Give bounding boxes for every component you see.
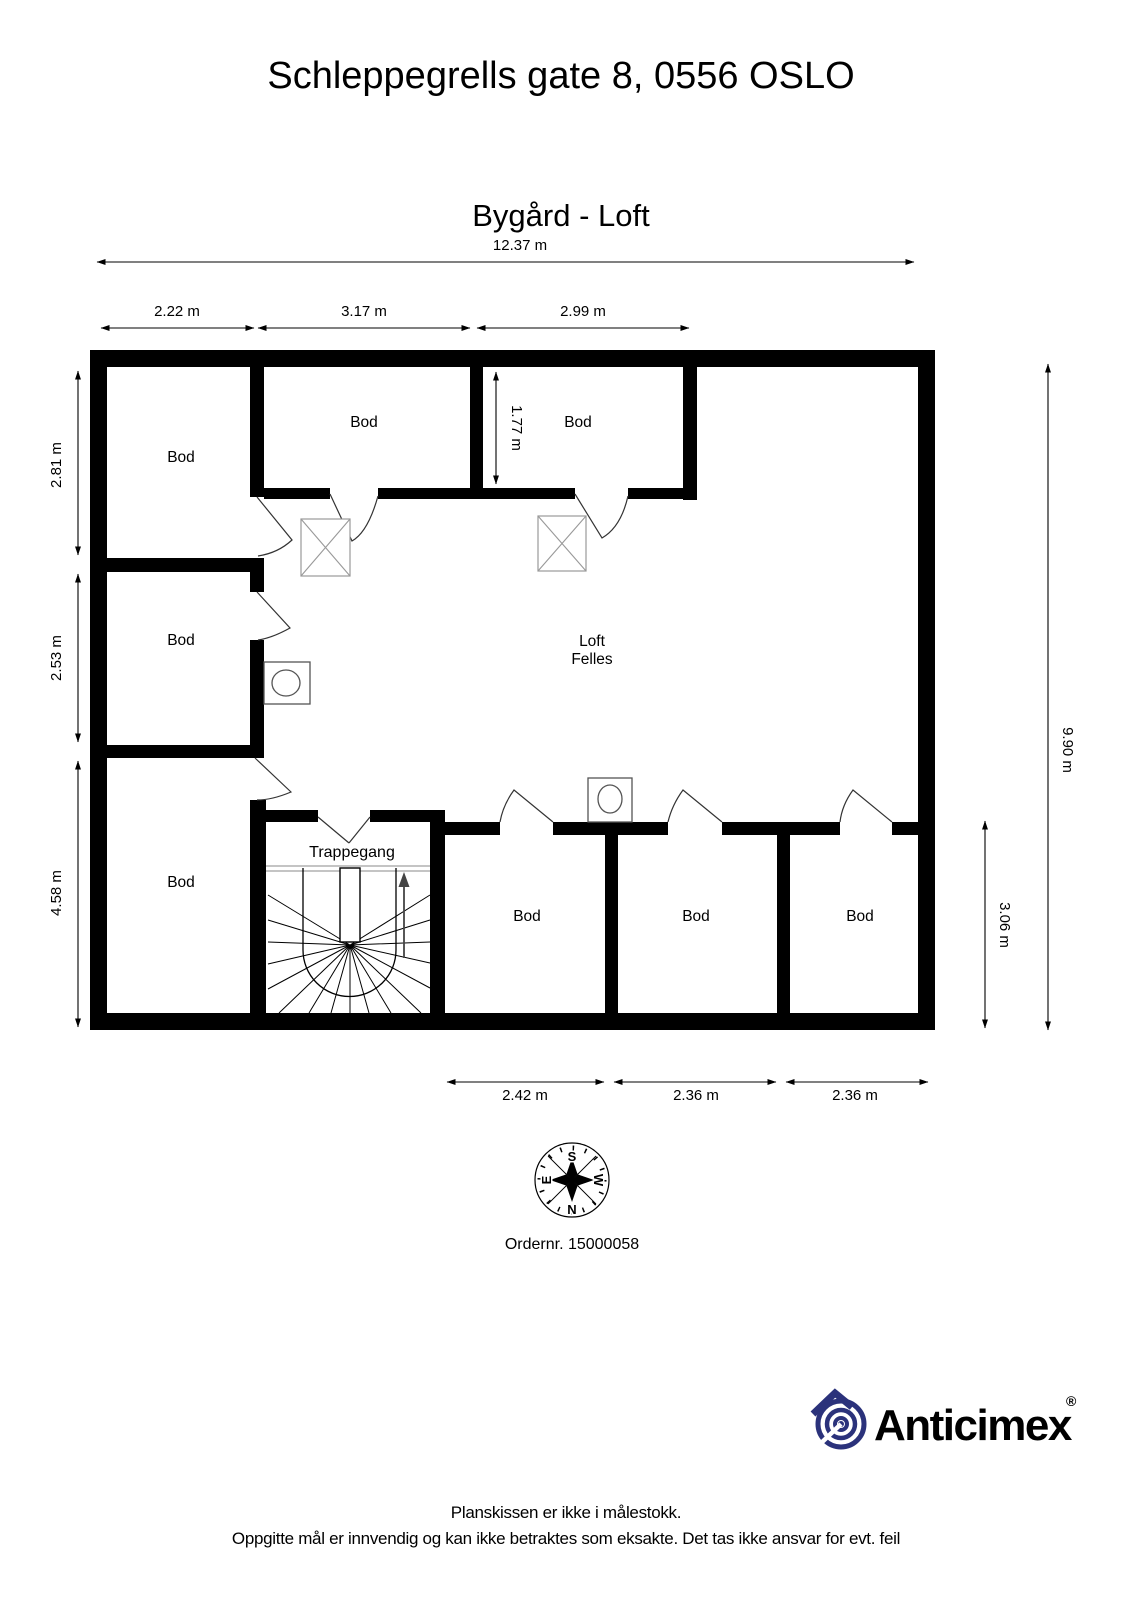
room-label-bod-top-right: Bod <box>564 414 592 431</box>
dimension-top-1-label: 2.22 m <box>154 303 200 320</box>
wall-stairwell-top-a <box>252 810 318 822</box>
dimension-total-width: 12.37 m <box>97 237 914 262</box>
wall-topleft-bod-right <box>250 350 264 497</box>
brand-name: Anticimex <box>874 1401 1073 1450</box>
dimension-inner-room-depth: 1.77 m <box>496 372 525 484</box>
room-label-bod-bottom-2: Bod <box>682 908 710 925</box>
brand-logo-icon <box>813 1393 864 1447</box>
order-number: Ordernr. 15000058 <box>505 1236 639 1253</box>
stair-direction-arrow <box>399 872 410 958</box>
plan-subtitle: Bygård - Loft <box>472 198 650 233</box>
registered-trademark-icon: ® <box>1066 1393 1077 1409</box>
dimension-top-3-label: 2.99 m <box>560 303 606 320</box>
page-title: Schleppegrells gate 8, 0556 OSLO <box>267 55 854 97</box>
outer-wall-top <box>90 350 935 367</box>
wall-bottom-rooms-top-4 <box>892 822 918 835</box>
wall-bottom-rooms-divider-1 <box>605 835 618 1013</box>
wall-midleft-bod-right-a <box>250 558 264 592</box>
footer-line-2: Oppgitte mål er innvendig og kan ikke be… <box>232 1529 900 1548</box>
staircase <box>266 866 430 1013</box>
dimension-left-2-label: 2.53 m <box>48 635 65 681</box>
wall-between-top-bods <box>470 350 483 499</box>
footer-disclaimer: Planskissen er ikke i målestokk. Oppgitt… <box>232 1503 900 1548</box>
wall-topright-bod-bottom-a <box>483 488 575 499</box>
compass-label-north: N <box>567 1202 576 1217</box>
wall-bottomleft-bod-right <box>250 800 266 1013</box>
dimension-bottom-1-label: 2.42 m <box>502 1087 548 1104</box>
room-label-bod-top-middle: Bod <box>350 414 378 431</box>
stair-newel <box>340 868 360 942</box>
door-stairwell <box>318 817 370 843</box>
wall-bottom-rooms-top-1 <box>445 822 500 835</box>
wall-topright-bod-right <box>683 350 697 500</box>
wall-topright-bod-bottom-b <box>628 488 697 499</box>
compass-label-south: S <box>568 1149 577 1164</box>
wall-topmid-bod-bottom-a <box>264 488 330 499</box>
brand-logo-wordmark: Anticimex ® <box>874 1393 1077 1450</box>
wall-bottom-rooms-top-3 <box>722 822 840 835</box>
room-label-loft: Loft <box>579 633 606 650</box>
chimney-left <box>301 519 350 576</box>
dimension-inner-room-depth-label: 1.77 m <box>508 405 525 451</box>
dimension-total-width-label: 12.37 m <box>493 237 547 254</box>
dimension-top-row: 2.22 m 3.17 m 2.99 m <box>101 303 689 328</box>
door-midleft-bod <box>257 592 290 640</box>
room-label-bod-bottom-3: Bod <box>846 908 874 925</box>
door-bottom-bod-2 <box>668 790 722 822</box>
dimension-right-column: 9.90 m 3.06 m <box>985 364 1076 1030</box>
chimneys <box>301 516 586 576</box>
room-label-felles: Felles <box>571 651 613 668</box>
room-label-trappegang: Trappegang <box>309 844 395 861</box>
wall-bottom-rooms-divider-2 <box>777 835 790 1013</box>
dimension-top-2-label: 3.17 m <box>341 303 387 320</box>
outer-wall-right <box>918 350 935 1030</box>
wall-left-divider-2 <box>90 745 264 758</box>
wall-stairwell-right <box>430 810 445 1013</box>
walls <box>90 350 935 1030</box>
door-bottom-bod-3 <box>840 790 892 822</box>
door-bottomleft-bod <box>255 758 291 800</box>
outer-wall-left <box>90 350 107 1030</box>
door-bottom-bod-1 <box>500 790 553 822</box>
wall-left-divider-1 <box>90 558 264 572</box>
chimney-right <box>538 516 586 571</box>
dimension-right-total-label: 9.90 m <box>1059 727 1076 773</box>
dimension-bottom-row: 2.42 m 2.36 m 2.36 m <box>447 1082 928 1104</box>
dimension-left-column: 2.81 m 2.53 m 4.58 m <box>48 371 78 1027</box>
floor-plan-document: Schleppegrells gate 8, 0556 OSLO Bygård … <box>0 0 1131 1600</box>
room-label-bod-mid-left: Bod <box>167 632 195 649</box>
footer-line-1: Planskissen er ikke i målestokk. <box>451 1503 681 1522</box>
dimension-bottom-3-label: 2.36 m <box>832 1087 878 1104</box>
vent-bottom <box>588 778 632 822</box>
compass-rose: S N E W <box>535 1143 609 1217</box>
wall-bottom-rooms-top-2 <box>553 822 668 835</box>
wall-midleft-bod-right-b <box>250 640 264 745</box>
vents <box>264 662 632 822</box>
dimension-bottom-2-label: 2.36 m <box>673 1087 719 1104</box>
outer-wall-bottom <box>90 1013 935 1030</box>
door-topleft-bod <box>257 497 292 556</box>
room-label-bod-bottom-left: Bod <box>167 874 195 891</box>
dimension-left-1-label: 2.81 m <box>48 442 65 488</box>
compass-label-west: W <box>591 1174 606 1187</box>
compass-label-east: E <box>539 1175 554 1184</box>
dimension-right-bottom-rooms-label: 3.06 m <box>996 902 1013 948</box>
brand-logo: Anticimex ® <box>813 1393 1077 1450</box>
vent-midleft <box>264 662 310 704</box>
room-label-bod-bottom-1: Bod <box>513 908 541 925</box>
dimension-left-3-label: 4.58 m <box>48 870 65 916</box>
room-label-bod-top-left: Bod <box>167 449 195 466</box>
wall-topmid-bod-bottom-b <box>378 488 470 499</box>
